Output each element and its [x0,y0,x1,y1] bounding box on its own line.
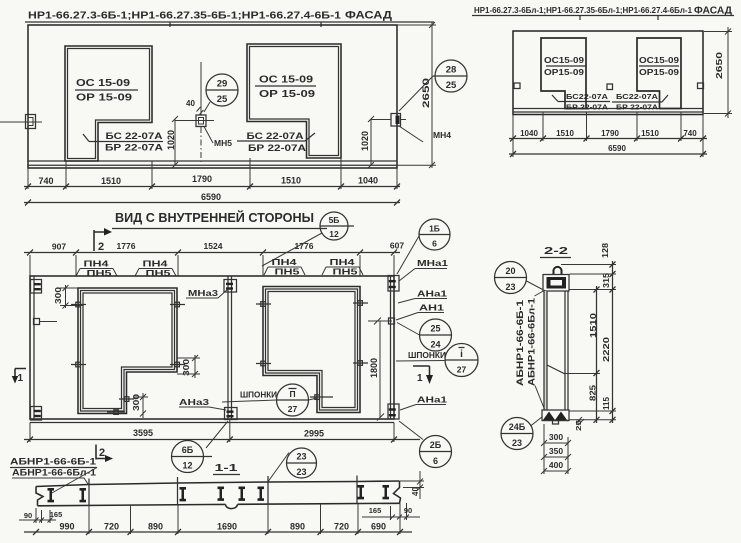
svg-text:АБНР1-66-6Б-1: АБНР1-66-6Б-1 [10,457,96,467]
svg-text:АБНР1-66-6Бл-1: АБНР1-66-6Бл-1 [527,298,537,386]
svg-text:740: 740 [38,176,53,186]
svg-text:ПН4: ПН4 [84,260,110,269]
svg-text:1510: 1510 [281,176,301,186]
svg-text:28: 28 [446,65,457,76]
svg-text:300: 300 [549,432,563,442]
svg-text:25: 25 [574,420,583,431]
svg-text:1020: 1020 [166,130,176,150]
svg-text:ОР15-09: ОР15-09 [639,68,680,77]
svg-text:ФАСАД: ФАСАД [694,6,732,17]
svg-text:ШПОНКИ: ШПОНКИ [408,351,446,360]
svg-text:АБНР1-66-6Б-1: АБНР1-66-6Б-1 [515,300,525,386]
svg-text:2: 2 [98,241,104,253]
svg-text:АНа1: АНа1 [417,395,447,405]
svg-text:25: 25 [217,94,228,105]
svg-text:БС22-07А: БС22-07А [616,94,658,101]
svg-text:1690: 1690 [217,522,237,532]
svg-text:1: 1 [417,373,423,384]
svg-text:1510: 1510 [588,313,598,338]
svg-text:300: 300 [132,393,141,411]
svg-text:23: 23 [505,282,515,292]
svg-text:АН1: АН1 [419,303,444,313]
svg-text:1776: 1776 [295,241,314,251]
svg-text:6590: 6590 [201,192,221,202]
svg-text:25: 25 [430,324,440,334]
svg-text:1510: 1510 [556,129,574,138]
svg-text:1524: 1524 [204,241,223,251]
svg-text:24Б: 24Б [509,422,526,432]
svg-text:350: 350 [549,446,563,456]
svg-text:23: 23 [296,452,306,462]
svg-text:БР 22-07А: БР 22-07А [566,105,608,112]
svg-text:1Б: 1Б [429,224,440,234]
svg-text:29: 29 [217,79,228,90]
svg-text:400: 400 [549,460,563,470]
svg-text:825: 825 [588,385,598,401]
svg-text:ОС15-09: ОС15-09 [639,56,680,65]
svg-text:ОС 15-09: ОС 15-09 [76,78,131,89]
svg-text:ОР 15-09: ОР 15-09 [259,89,316,100]
svg-text:607: 607 [390,241,404,251]
svg-text:990: 990 [59,522,74,532]
svg-text:1790: 1790 [601,129,619,138]
svg-text:МН4: МН4 [433,130,451,140]
svg-text:6Б: 6Б [182,445,194,455]
svg-text:740: 740 [683,129,697,138]
svg-text:ОР 15-09: ОР 15-09 [76,93,133,104]
svg-text:907: 907 [52,242,66,252]
svg-text:МНа1: МНа1 [417,258,448,268]
svg-text:300: 300 [182,358,191,376]
svg-text:БС 22-07А: БС 22-07А [247,131,304,142]
svg-text:690: 690 [371,522,386,532]
svg-text:890: 890 [290,522,305,532]
svg-text:МНа3: МНа3 [188,288,218,298]
svg-text:5Б: 5Б [329,215,340,225]
svg-text:2-2: 2-2 [544,246,569,257]
svg-text:27: 27 [288,404,298,414]
svg-text:i: i [460,349,463,360]
svg-text:890: 890 [148,522,163,532]
svg-text:115: 115 [601,397,611,410]
svg-text:720: 720 [104,522,119,532]
svg-text:НР1-66.27.3-6Бл-1;НР1-66.27.35: НР1-66.27.3-6Бл-1;НР1-66.27.35-6Бл-1;НР1… [474,6,693,15]
svg-text:1040: 1040 [358,176,378,186]
svg-text:БС22-07А: БС22-07А [566,94,608,101]
svg-text:12: 12 [329,229,339,239]
svg-text:2220: 2220 [601,337,611,362]
svg-text:2650: 2650 [714,52,724,79]
svg-text:12: 12 [182,461,192,471]
svg-text:6590: 6590 [608,144,626,153]
svg-text:БР 22-07А: БР 22-07А [248,143,306,154]
svg-text:1776: 1776 [117,241,136,251]
svg-text:1020: 1020 [360,131,370,151]
svg-text:128: 128 [601,242,610,258]
svg-text:24: 24 [430,340,440,350]
svg-text:3595: 3595 [133,428,153,438]
svg-text:ПН5: ПН5 [333,267,359,276]
svg-text:40: 40 [186,99,195,108]
svg-text:90: 90 [24,511,32,520]
svg-text:ОС15-09: ОС15-09 [544,56,585,65]
svg-text:40: 40 [411,487,420,496]
svg-text:23: 23 [296,467,306,477]
svg-text:ОР15-09: ОР15-09 [544,68,585,77]
svg-text:АБНР1-66-6Бл-1: АБНР1-66-6Бл-1 [12,468,96,478]
svg-text:720: 720 [334,522,349,532]
svg-text:165: 165 [369,506,382,515]
svg-text:АНа1: АНа1 [417,289,447,299]
svg-text:1510: 1510 [641,129,659,138]
svg-text:27: 27 [457,365,467,375]
svg-text:БР 22-07А: БР 22-07А [616,105,658,112]
svg-text:300: 300 [54,286,63,304]
svg-text:6: 6 [433,456,438,466]
svg-text:ВИД С ВНУТРЕННЕЙ СТОРОНЫ: ВИД С ВНУТРЕННЕЙ СТОРОНЫ [115,210,314,225]
svg-text:АНа3: АНа3 [179,397,209,407]
svg-text:БР 22-07А: БР 22-07А [105,143,163,154]
svg-text:ОС 15-09: ОС 15-09 [259,75,314,86]
svg-text:165: 165 [50,510,63,519]
svg-text:НР1-66.27.3-6Б-1;НР1-66.27.35-: НР1-66.27.3-6Б-1;НР1-66.27.35-6Б-1;НР1-6… [28,10,341,22]
svg-text:1800: 1800 [369,358,379,378]
svg-text:П: П [289,389,295,399]
svg-text:2: 2 [99,447,105,459]
svg-text:БС 22-07А: БС 22-07А [106,131,163,142]
svg-text:ШПОНКИ: ШПОНКИ [240,391,277,400]
svg-text:1: 1 [18,373,24,384]
svg-text:2Б: 2Б [430,440,442,450]
svg-text:1040: 1040 [520,129,538,138]
svg-text:23: 23 [512,438,522,448]
svg-text:6: 6 [432,239,437,249]
svg-text:ПН5: ПН5 [275,267,301,276]
svg-text:2995: 2995 [304,429,324,439]
svg-text:1510: 1510 [101,176,121,186]
svg-text:ПН4: ПН4 [143,260,169,269]
svg-text:25: 25 [446,80,457,91]
svg-text:90: 90 [404,506,412,515]
svg-text:ПН4: ПН4 [330,258,356,267]
svg-text:МН5: МН5 [214,138,232,148]
svg-text:315: 315 [602,272,611,288]
svg-text:ПН4: ПН4 [272,258,298,267]
svg-text:1-1: 1-1 [215,463,239,474]
svg-text:ФАСАД: ФАСАД [345,10,392,22]
svg-text:20: 20 [505,266,515,276]
svg-text:1790: 1790 [192,174,212,184]
